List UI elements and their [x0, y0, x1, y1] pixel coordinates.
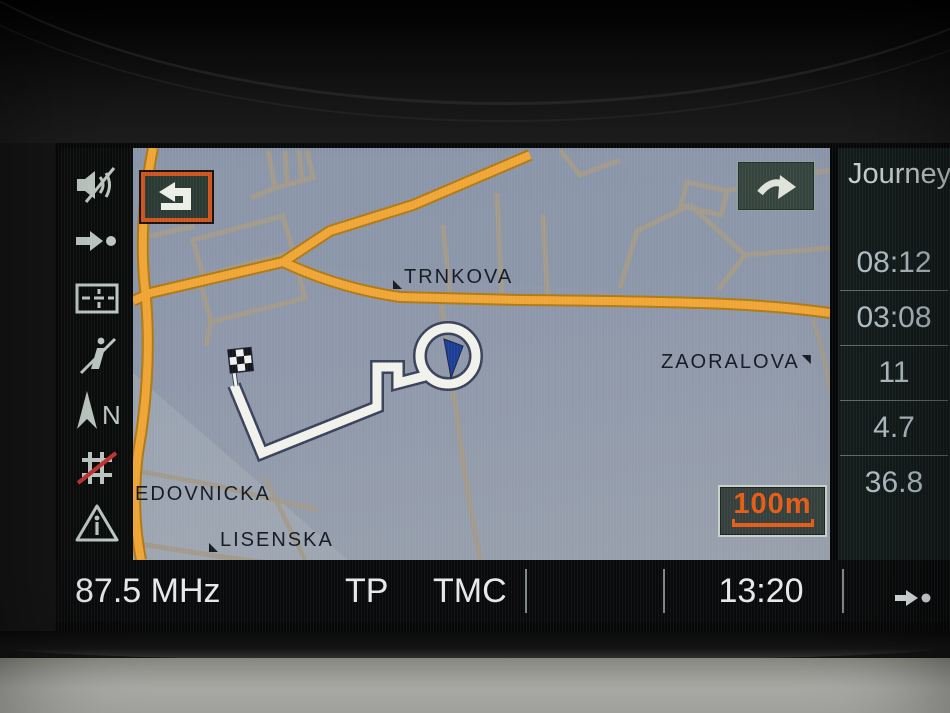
divider: [663, 569, 665, 613]
divider: [842, 569, 844, 613]
destination-flag-icon: [228, 348, 253, 386]
dashboard-top: [0, 0, 950, 143]
radio-frequency: 87.5 MHz: [75, 572, 221, 611]
back-button[interactable]: [141, 172, 212, 222]
street-marker-icon: [802, 355, 811, 364]
map-view[interactable]: TRNKOVA ZAORALOVA EDOVNICKA LISENSKA: [133, 148, 830, 560]
traffic-info-icon: [74, 501, 120, 545]
route-guidance-icon: [74, 219, 120, 263]
street-label-trnkova: TRNKOVA: [393, 266, 513, 289]
street-name: EDOVNICKA: [135, 483, 271, 506]
journey-value: 4.7: [838, 401, 950, 455]
street-name: ZAORALOVA: [661, 351, 800, 374]
sidebar-item-info-services-off: [68, 331, 126, 377]
journey-value-remaining-time: 03:08: [838, 291, 950, 345]
status-bar: 87.5 MHz TP TMC 13:20: [55, 560, 950, 622]
street-label-edovnicka: EDOVNICKA: [135, 483, 271, 506]
arrow-right-icon: [754, 170, 798, 202]
avoid-motorway-icon: [74, 445, 120, 489]
street-label-lisenska: LISENSKA: [209, 529, 334, 552]
sidebar-function-column: N: [60, 148, 133, 560]
route-line: [234, 328, 476, 453]
journey-value: 11: [838, 346, 950, 400]
route-guidance-status: [895, 580, 935, 619]
street-marker-icon: [393, 280, 402, 289]
journey-value: 36.8: [838, 456, 950, 510]
journey-panel-title: Journey: [838, 148, 950, 191]
journey-rows: 08:12 03:08 11 4.7 36.8: [838, 236, 950, 510]
sidebar-item-avoid-motorway: [68, 444, 126, 490]
street-name: TRNKOVA: [404, 266, 513, 289]
journey-value-arrival-time: 08:12: [838, 236, 950, 290]
nav-display: N: [55, 143, 950, 635]
street-name: LISENSKA: [220, 529, 334, 552]
compass-north-icon: N: [69, 388, 125, 432]
panel-toggle-button[interactable]: [737, 161, 815, 211]
map-scale-label: 100m: [733, 487, 811, 521]
sidebar-item-compass: N: [68, 387, 126, 433]
car-dashboard-photo: { "sidebar": { "compass_label": "N", "ic…: [0, 0, 950, 713]
street-label-zaoralova: ZAORALOVA: [661, 351, 811, 374]
sidebar-item-audio-muted: [68, 162, 126, 208]
dashboard-bottom: [0, 658, 950, 713]
street-marker-icon: [209, 543, 218, 552]
bezel-bottom: [0, 631, 950, 660]
map-scale-control[interactable]: 100m: [718, 485, 827, 537]
audio-muted-icon: [74, 162, 120, 208]
sidebar-item-traffic-info: [68, 500, 126, 546]
scale-bar-icon: [732, 519, 814, 527]
tmc-indicator: TMC: [433, 572, 507, 611]
divider: [525, 569, 527, 613]
sidebar-item-route-guidance: [68, 218, 126, 264]
route-guidance-icon: [895, 586, 935, 610]
sidebar-item-split-screen: [68, 275, 126, 321]
info-services-off-icon: [74, 331, 120, 377]
clock: 13:20: [705, 572, 817, 611]
journey-panel: Journey 08:12 03:08 11 4.7 36.8: [838, 148, 950, 560]
tp-indicator: TP: [345, 572, 388, 611]
split-screen-icon: [74, 275, 120, 321]
compass-north-label: N: [102, 400, 121, 430]
return-arrow-icon: [155, 177, 199, 217]
